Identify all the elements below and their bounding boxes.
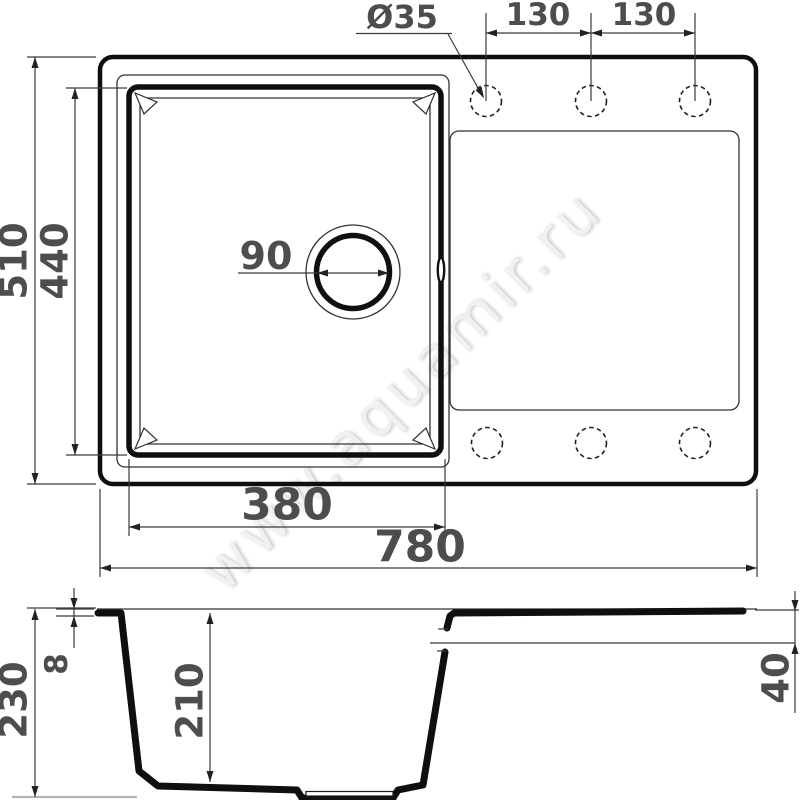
top-view <box>100 57 756 484</box>
drainboard-hole-dashed-circle-2 <box>576 428 607 459</box>
drain-outer-circle <box>306 225 400 319</box>
dim-bowl-inner-depth-label: 210 <box>169 662 212 739</box>
section-drainboard-profile <box>447 611 743 628</box>
sink-technical-drawing: www.aquamir.ru <box>0 0 800 800</box>
dim-hole-diameter: Ø35 <box>356 0 484 98</box>
section-drain-fitting <box>306 792 393 797</box>
outer-outline <box>100 57 756 484</box>
dim-drainboard-drop: 40 <box>755 591 800 713</box>
dim-overall-width: 780 <box>100 489 757 577</box>
dim-bowl-depth-plan: 440 <box>34 88 128 455</box>
dim-hole-diameter-label: Ø35 <box>366 0 438 36</box>
overflow-slot <box>438 258 444 283</box>
dim-rim-thickness-label: 8 <box>39 653 75 675</box>
dim-bowl-inner-depth: 210 <box>169 613 214 782</box>
drainboard-outline <box>450 131 739 410</box>
dim-rim-thickness: 8 <box>39 588 94 675</box>
dim-drainboard-drop-label: 40 <box>755 652 798 704</box>
dim-spacing-left-label: 130 <box>506 0 571 33</box>
dim-overall-height-label: 230 <box>0 661 36 738</box>
dim-overall-width-label: 780 <box>374 522 466 573</box>
dim-overall-depth-label: 510 <box>0 222 36 299</box>
dim-bowl-width-label: 380 <box>241 480 333 531</box>
drainboard-hole-dashed-circle-3 <box>680 428 711 459</box>
dim-spacing-right-label: 130 <box>612 0 677 33</box>
drawing-svg: Ø35 130 130 510 <box>0 0 800 800</box>
dim-drain-diameter-label: 90 <box>240 234 293 278</box>
dim-overall-height: 230 <box>0 608 137 797</box>
section-bowl-profile <box>98 613 445 798</box>
drainboard-hole-dashed-circle-1 <box>472 428 503 459</box>
dim-bowl-depth-plan-label: 440 <box>34 222 77 299</box>
